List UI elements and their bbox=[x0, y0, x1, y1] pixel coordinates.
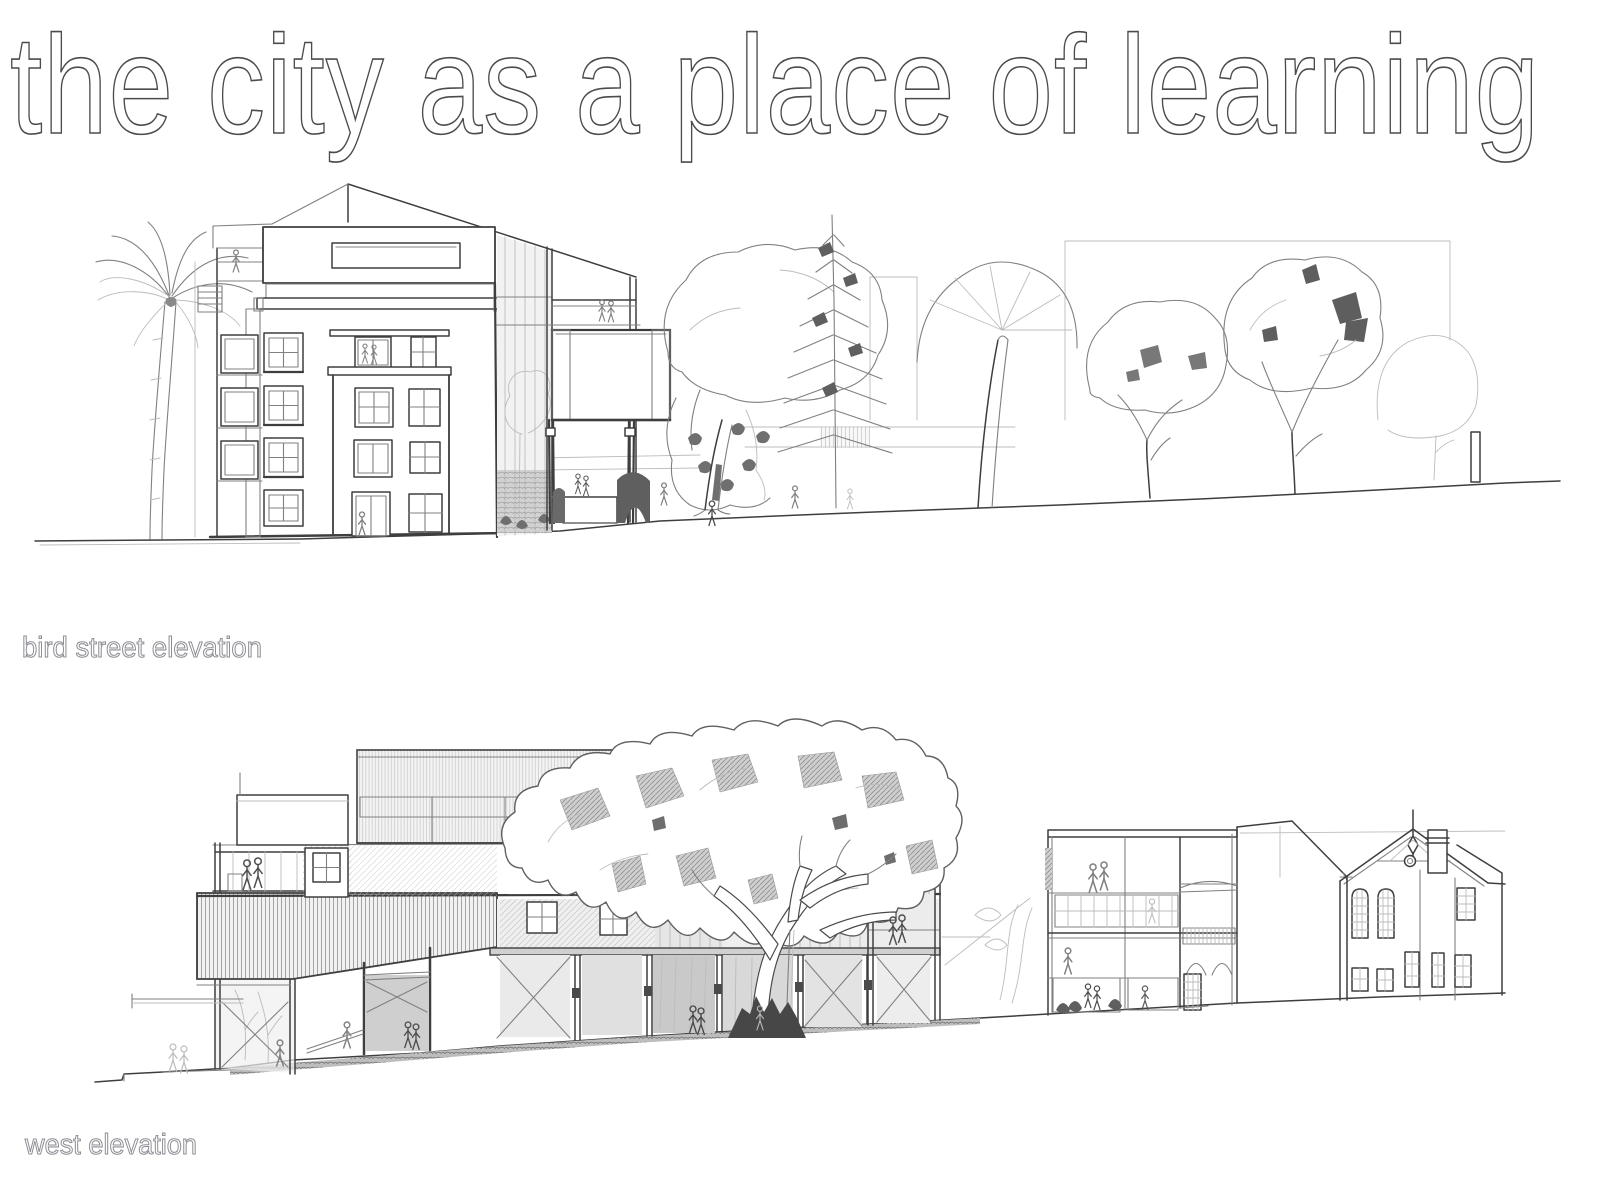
board-title: the city as a place of learning bbox=[0, 0, 1600, 175]
sketch-marks bbox=[942, 898, 1032, 1003]
heritage-terrace bbox=[1045, 827, 1237, 1015]
glass-atrium bbox=[497, 235, 552, 536]
conifer-tree bbox=[778, 215, 892, 508]
stilt-bay bbox=[132, 979, 295, 1074]
presentation-board: the city as a place of learning bbox=[0, 0, 1600, 1200]
gabled-hall bbox=[1237, 810, 1505, 1000]
palm-tree bbox=[96, 222, 252, 539]
central-bay bbox=[328, 330, 451, 536]
corrugated-band bbox=[197, 893, 497, 985]
window-column-recessed bbox=[217, 335, 262, 481]
street-trees-mid bbox=[664, 215, 1077, 516]
shrub bbox=[553, 488, 565, 523]
caption-west: west elevation bbox=[0, 1112, 500, 1172]
umbrella-tree bbox=[917, 262, 1077, 508]
caption-west-label: west elevation bbox=[24, 1129, 197, 1161]
page-title: the city as a place of learning bbox=[10, 6, 1540, 163]
bird-street-elevation-drawing bbox=[0, 160, 1600, 660]
street-trees-right bbox=[1087, 257, 1480, 498]
bollard bbox=[1471, 432, 1480, 482]
window-column-boxed bbox=[264, 333, 303, 526]
